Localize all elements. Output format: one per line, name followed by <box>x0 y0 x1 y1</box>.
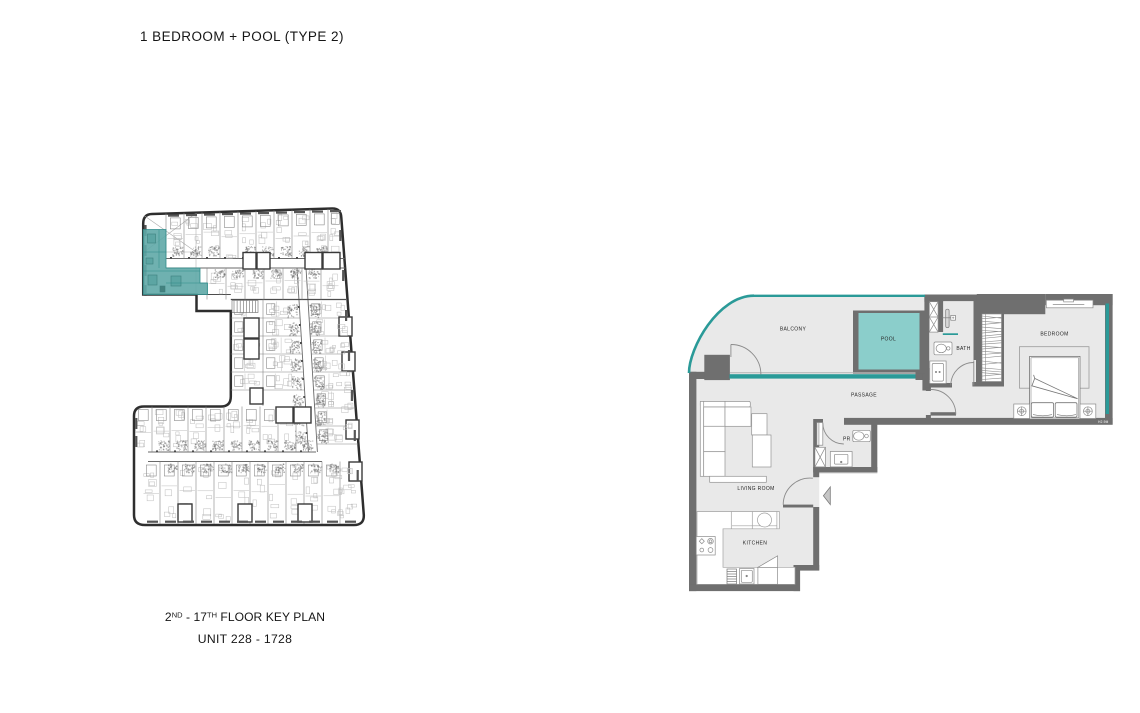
svg-text:KITCHEN: KITCHEN <box>743 541 767 547</box>
svg-text:POOL: POOL <box>881 337 896 343</box>
svg-text:BEDROOM: BEDROOM <box>1040 332 1068 338</box>
svg-text:H2.9M: H2.9M <box>1098 420 1109 424</box>
svg-text:BALCONY: BALCONY <box>780 327 807 333</box>
svg-text:PASSAGE: PASSAGE <box>851 393 877 399</box>
svg-text:LIVING ROOM: LIVING ROOM <box>737 486 774 492</box>
svg-text:PR: PR <box>843 436 851 442</box>
svg-text:BATH: BATH <box>956 346 970 352</box>
